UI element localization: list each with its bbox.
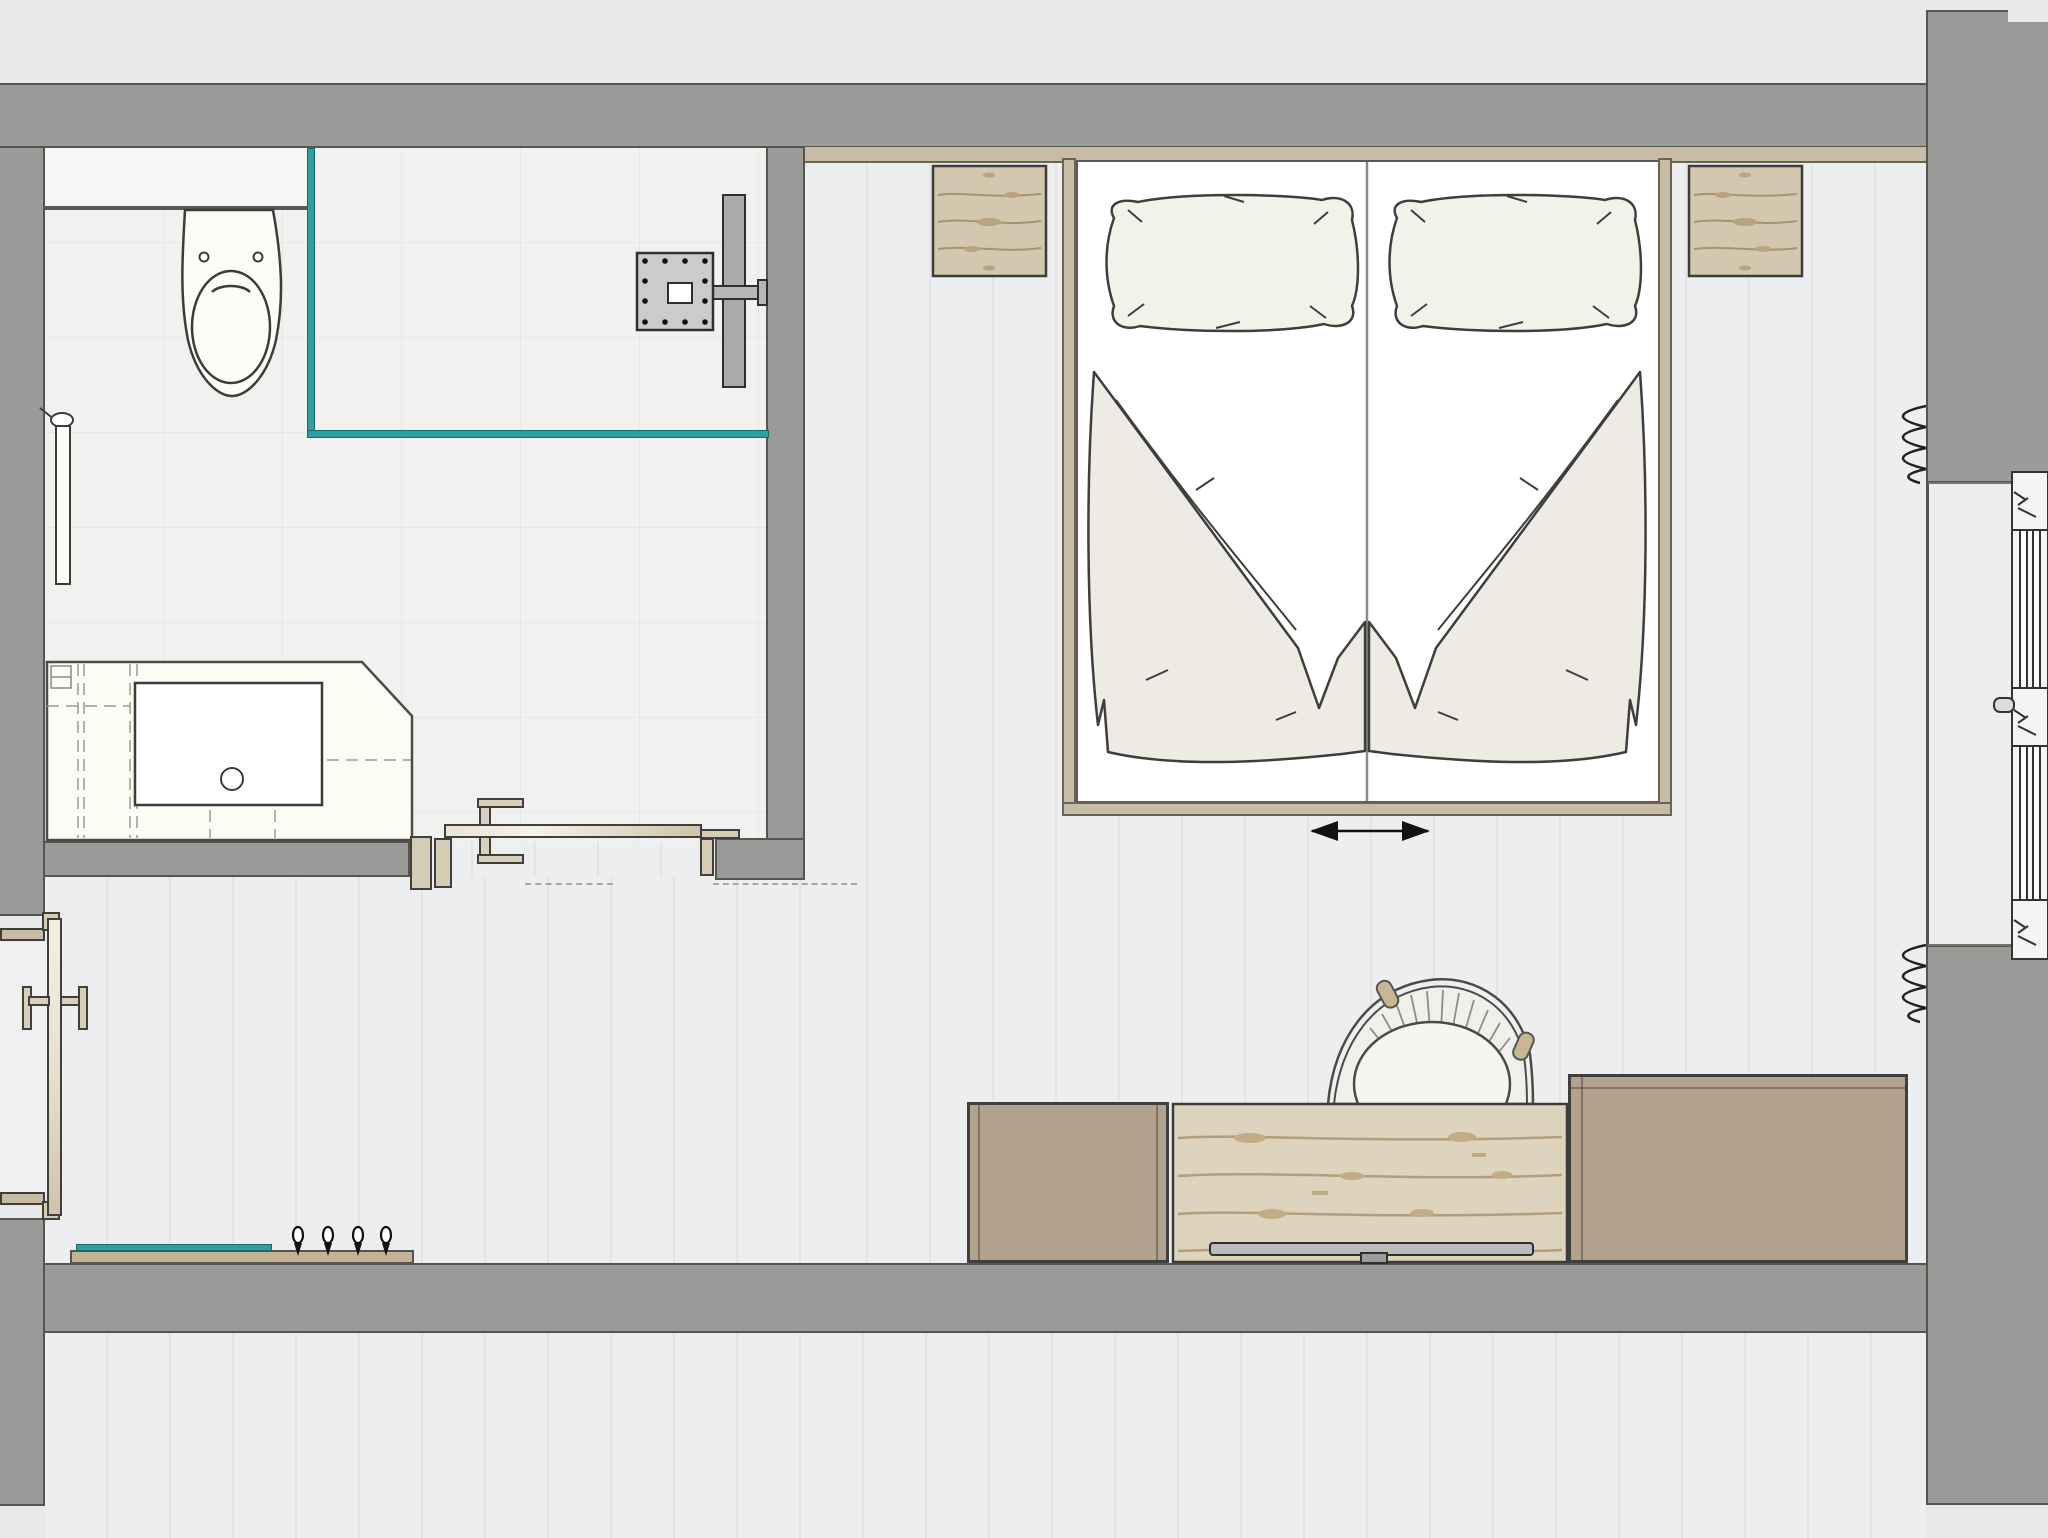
adjacent-room-floor	[45, 1333, 1926, 1538]
shower-head-icon	[630, 188, 780, 400]
bedding	[1076, 160, 1660, 803]
hall-floor	[45, 877, 805, 1263]
shower-glass-vertical	[307, 148, 315, 438]
bath-door-jamb-left	[410, 836, 432, 890]
window-icon	[1876, 380, 2048, 1062]
sideboard-cabinet-left	[967, 1102, 1169, 1263]
entry-frame-top	[0, 928, 45, 941]
armchair-icon	[1318, 958, 1548, 1106]
tray-clip	[1360, 1252, 1388, 1264]
bathroom-door-threshold	[410, 841, 715, 877]
right-wall-notch	[2008, 8, 2048, 22]
bath-door-jamb-latch	[700, 838, 714, 876]
entry-door-opening	[0, 942, 45, 1192]
sideboard-cabinet-right	[1568, 1074, 1908, 1263]
window-handle-icon	[1994, 698, 2014, 712]
bathroom-wall-corner	[715, 838, 805, 880]
coat-rack-rail	[76, 1244, 272, 1251]
left-wall-lower	[0, 1218, 45, 1506]
vanity-icon	[45, 652, 417, 844]
bed-frame-right	[1658, 158, 1672, 816]
entry-door-leaf	[47, 918, 62, 1216]
bath-door-handle-stem	[479, 836, 491, 856]
nightstand-left	[932, 165, 1047, 277]
bed-frame-left	[1062, 158, 1076, 816]
bottom-wall	[43, 1263, 1928, 1333]
bath-door-jamb-leaf	[434, 838, 452, 888]
towel-rail-icon	[38, 398, 83, 593]
top-wall	[0, 83, 1928, 148]
coat-hooks	[288, 1226, 400, 1260]
entry-frame-bottom	[0, 1192, 45, 1205]
entry-handle-outside-stem	[28, 996, 50, 1006]
toilet-icon	[158, 200, 313, 405]
nightstand-right	[1688, 165, 1803, 277]
desk-counter	[1172, 1103, 1568, 1263]
bathroom-bottom-wall	[43, 841, 410, 877]
bath-door-handle-stem	[479, 806, 491, 826]
bed-slide-arrow-icon	[1306, 818, 1434, 844]
entry-handle-inside	[78, 986, 88, 1030]
threshold-dashed-line	[525, 883, 613, 885]
shower-glass-horizontal	[307, 430, 769, 438]
threshold-dashed-line	[713, 883, 857, 885]
floor-plan	[0, 0, 2048, 1538]
bed-frame-foot	[1062, 802, 1672, 816]
entry-handle-outside	[22, 986, 32, 1030]
